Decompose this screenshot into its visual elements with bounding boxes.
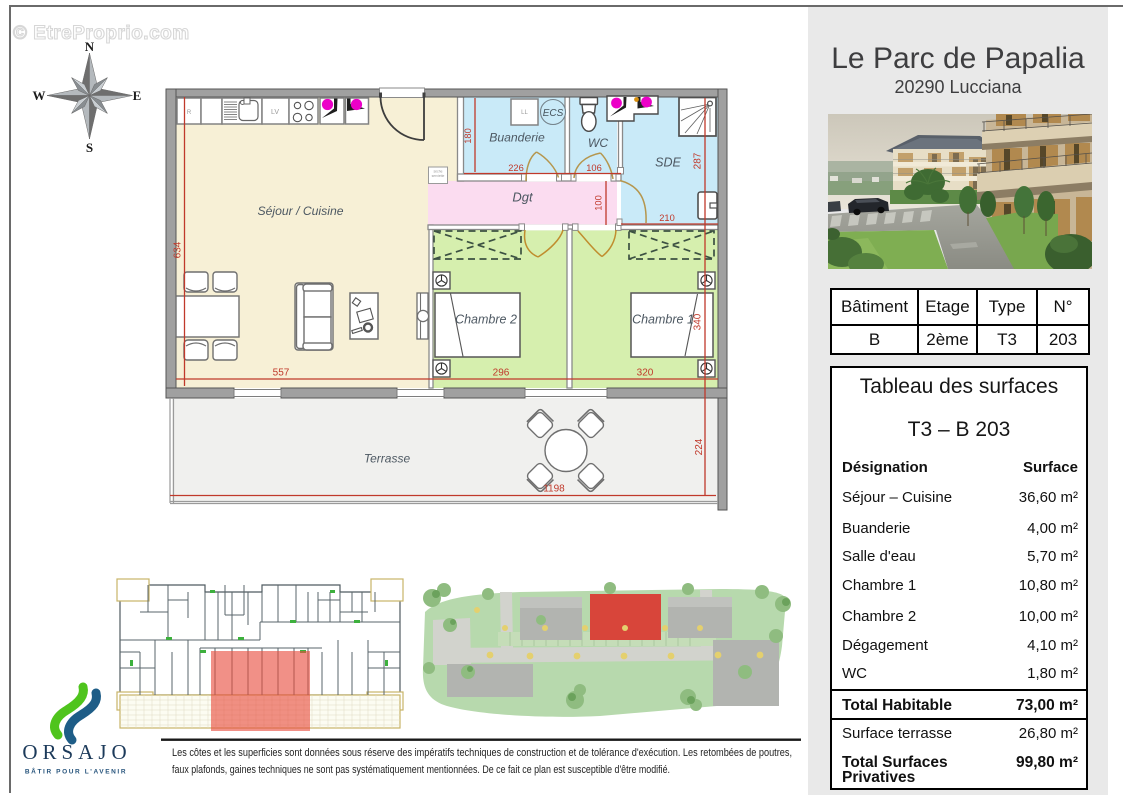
svg-text:Les côtes et les superficies s: Les côtes et les superficies sont donnée…	[172, 747, 792, 759]
svg-text:Séjour / Cuisine: Séjour / Cuisine	[257, 204, 343, 218]
svg-text:sèche: sèche	[433, 170, 442, 174]
svg-text:557: 557	[273, 368, 290, 379]
svg-text:634: 634	[173, 241, 184, 258]
svg-text:W: W	[33, 88, 46, 103]
svg-text:226: 226	[508, 163, 524, 173]
svg-text:180: 180	[463, 128, 473, 144]
svg-text:WC: WC	[588, 136, 609, 150]
svg-text:R: R	[187, 110, 192, 116]
svg-text:ORSAJO: ORSAJO	[22, 740, 131, 764]
svg-text:Buanderie: Buanderie	[489, 131, 545, 145]
svg-text:Terrasse: Terrasse	[364, 452, 411, 466]
svg-text:S: S	[86, 140, 93, 155]
svg-text:106: 106	[586, 163, 602, 173]
svg-text:100: 100	[594, 195, 604, 211]
svg-text:serviette: serviette	[432, 174, 445, 178]
svg-text:E: E	[133, 88, 142, 103]
svg-text:LL: LL	[521, 110, 528, 116]
svg-text:N: N	[85, 39, 95, 54]
svg-text:Chambre 2: Chambre 2	[455, 313, 517, 327]
svg-text:SDE: SDE	[655, 156, 681, 170]
svg-text:320: 320	[637, 368, 654, 379]
svg-text:1198: 1198	[543, 484, 565, 495]
svg-text:LV: LV	[271, 109, 279, 116]
svg-text:296: 296	[493, 368, 510, 379]
svg-text:Chambre 1: Chambre 1	[632, 313, 694, 327]
svg-text:340: 340	[693, 313, 704, 330]
svg-text:Dgt: Dgt	[512, 190, 534, 205]
svg-text:faux plafonds, gaines techniqu: faux plafonds, gaines techniques ne sont…	[172, 764, 670, 776]
svg-text:287: 287	[693, 152, 704, 169]
svg-text:BÂTIR POUR L'AVENIR: BÂTIR POUR L'AVENIR	[25, 767, 127, 776]
svg-text:210: 210	[659, 213, 675, 223]
svg-text:224: 224	[694, 438, 705, 455]
svg-text:ECS: ECS	[543, 108, 564, 119]
